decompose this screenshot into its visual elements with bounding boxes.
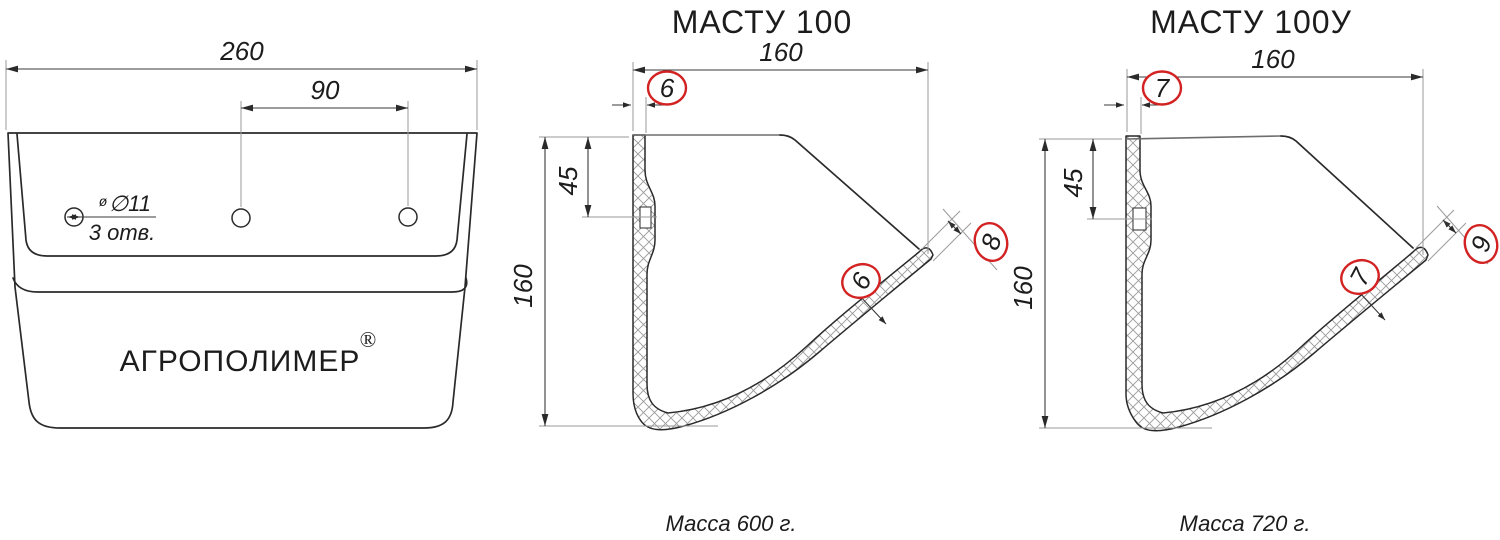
dim-text-hole-offset: 45 — [1058, 168, 1088, 197]
registered-trademark-symbol: ® — [360, 327, 377, 352]
front-view: 260 90 ø ∅11 3 отв. АГРОПОЛИМЕР ® — [6, 36, 477, 428]
front-view-lip-inner-line — [17, 134, 467, 256]
dim-hole-spacing: 90 — [241, 75, 408, 207]
hole-note-diameter: ∅11 — [109, 191, 151, 216]
hole-note-prefix: ø — [99, 193, 108, 209]
dim-text-width: 160 — [759, 37, 803, 67]
mounting-hole-right — [399, 208, 417, 226]
section-mouth-diagonal — [1281, 136, 1413, 248]
dim-text-hole-offset: 45 — [553, 166, 583, 195]
mass-label: Масса 720 г. — [1180, 511, 1311, 536]
front-view-fold-line — [13, 278, 467, 292]
hole-note-count: 3 отв. — [89, 220, 156, 245]
section-lip-top-line — [1126, 136, 1281, 139]
section-wall-hatched — [633, 135, 933, 430]
dim-height: 160 — [508, 137, 718, 426]
callout-tip-thickness: 8 — [922, 209, 1011, 270]
callout-text-top-wall: 6 — [660, 73, 675, 103]
section-mouth-diagonal — [780, 135, 919, 249]
callout-text-top-wall: 7 — [1155, 73, 1171, 103]
mounting-hole-middle — [232, 209, 250, 227]
section-view-mastu-100u: МАСТУ 100У 160 160 45 7 — [1008, 4, 1500, 536]
section-title: МАСТУ 100 — [672, 4, 853, 40]
mass-label: Масса 600 г. — [666, 511, 797, 536]
dim-text-overall-width: 260 — [219, 36, 264, 66]
dim-text-height: 160 — [1008, 266, 1038, 310]
callout-top-wall-thickness: 7 — [1104, 72, 1181, 135]
dim-height: 160 — [1008, 139, 1212, 428]
dim-width: 160 — [633, 37, 928, 254]
section-view-mastu-100: МАСТУ 100 160 160 45 — [508, 4, 1011, 536]
section-title: МАСТУ 100У — [1150, 4, 1352, 40]
drawing-canvas: 260 90 ø ∅11 3 отв. АГРОПОЛИМЕР ® МАСТУ … — [0, 0, 1500, 540]
callout-tip-thickness: 9 — [1416, 206, 1500, 266]
dim-text-height: 160 — [508, 264, 538, 308]
callout-top-wall-thickness: 6 — [612, 72, 686, 134]
section-wall-hatched — [1126, 136, 1428, 431]
front-view-outer-outline — [8, 133, 477, 428]
brand-text: АГРОПОЛИМЕР — [120, 345, 361, 378]
dim-text-width: 160 — [1251, 44, 1295, 74]
technical-drawing-sheet: 260 90 ø ∅11 3 отв. АГРОПОЛИМЕР ® МАСТУ … — [0, 0, 1500, 540]
dim-text-hole-spacing: 90 — [311, 75, 340, 105]
